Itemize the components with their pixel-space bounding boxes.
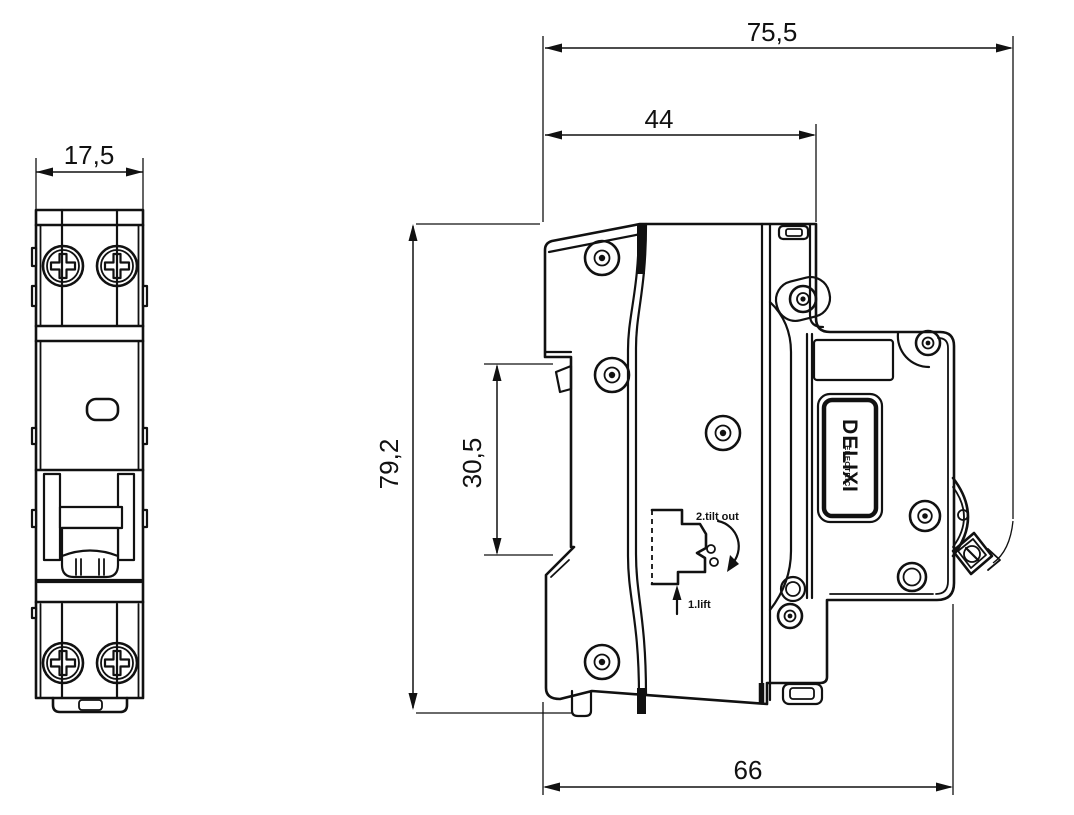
dim-label-din-gap: 30,5 (457, 438, 487, 489)
instruction-step2: 2.tilt out (696, 511, 739, 523)
dim-label-upper-depth: 44 (645, 104, 674, 134)
toggle-slot (60, 507, 122, 528)
dim-label-height: 79,2 (374, 439, 404, 490)
technical-drawing-page: 17,5 (0, 0, 1074, 815)
dim-label-base-depth: 66 (734, 755, 763, 785)
toggle-rail (44, 474, 60, 560)
brand-subtitle: ELECTRIC (843, 445, 852, 487)
breaker-dimension-drawing: 17,5 (0, 0, 1074, 815)
drawing-background (0, 0, 1074, 815)
dim-label-front-width: 17,5 (64, 140, 115, 170)
instruction-step1: 1.lift (688, 599, 711, 611)
dim-label-total-depth: 75,5 (747, 17, 798, 47)
